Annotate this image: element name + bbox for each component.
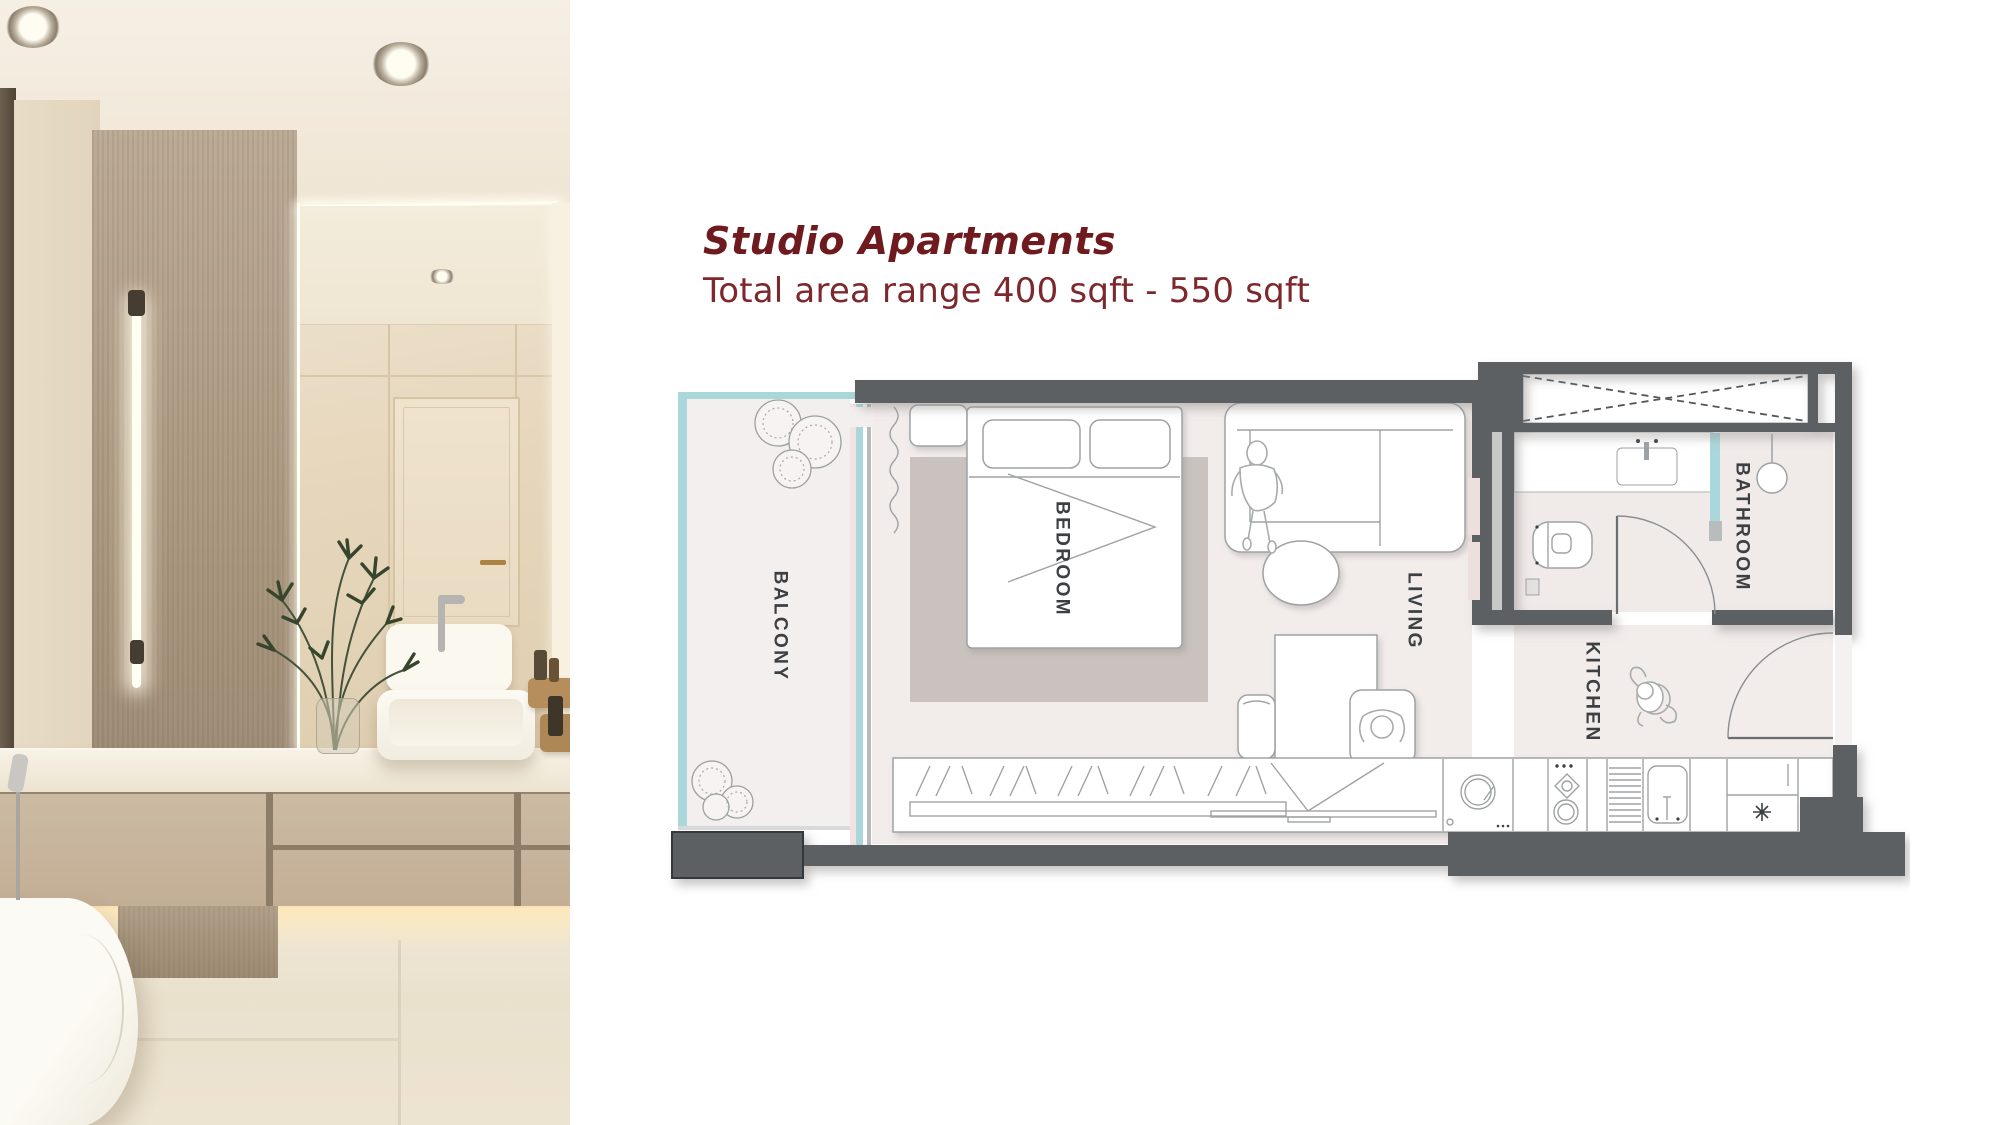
glass-wall [867, 404, 871, 846]
balcony-door-gap [849, 407, 873, 427]
wall-closet-bottom [1513, 423, 1835, 432]
balcony-glass-edge [678, 392, 687, 830]
ceiling-spotlight-icon [372, 42, 430, 86]
pillow-icon [1090, 420, 1170, 468]
wall-right-block [1800, 797, 1863, 832]
entry-door-opening [1835, 635, 1852, 745]
heading-block: Studio Apartments Total area range 400 s… [703, 220, 1310, 311]
wall-balcony-block [672, 832, 803, 878]
towel-rail-icon [1710, 433, 1720, 521]
vanity-counter [1514, 432, 1712, 492]
glass-wall [856, 404, 863, 846]
toilet-icon [1533, 522, 1592, 568]
room-label-living: LIVING [1404, 572, 1425, 650]
page: Studio Apartments Total area range 400 s… [0, 0, 2000, 1125]
wall-closet-divider [1808, 374, 1818, 423]
wall-right-upper [1835, 362, 1852, 635]
light-bracket [128, 290, 145, 316]
floor-plan-svg: BALCONY BEDROOM LIVING BATHROOM KITCHEN [660, 350, 1910, 910]
glass-wall [863, 404, 867, 846]
mirror-tile-seam [300, 375, 558, 377]
room-label-bathroom: BATHROOM [1732, 462, 1753, 592]
glass-wall [850, 404, 856, 846]
wall-bottom-living [803, 845, 1448, 866]
faucet-spout [438, 595, 465, 604]
wall-top-main [855, 380, 1478, 403]
room-label-bedroom: BEDROOM [1052, 501, 1073, 617]
bedside-table-icon [910, 405, 967, 446]
wall-niche [1468, 478, 1480, 535]
bottle-icon [549, 658, 559, 682]
page-subtitle: Total area range 400 sqft - 550 sqft [703, 271, 1310, 312]
floor-grout [398, 940, 401, 1125]
page-title: Studio Apartments [703, 220, 1310, 264]
ceiling-spotlight-icon [6, 6, 60, 48]
door-handle-icon [480, 560, 506, 565]
led-tube-light [132, 298, 141, 688]
wall-bottom-kitchen [1448, 832, 1905, 876]
faucet-icon [438, 600, 445, 652]
chair-icon [1238, 695, 1275, 759]
mirror-spotlight-icon [428, 269, 456, 284]
wood-pedestal [118, 906, 278, 978]
room-label-kitchen: KITCHEN [1582, 641, 1603, 742]
flush-plate [1526, 579, 1539, 595]
wall-shaft [1492, 432, 1502, 610]
bottle-icon [548, 696, 563, 736]
room-label-balcony: BALCONY [770, 571, 791, 682]
bathroom-photo [0, 0, 570, 1125]
balcony-edge-line [678, 826, 850, 830]
wardrobe-kitchen-band [893, 758, 1833, 832]
vanity-cabinet [0, 792, 570, 912]
cabinet-seam [273, 845, 570, 850]
cabinet-seam [266, 792, 273, 910]
towel-rail-cap [1709, 521, 1722, 541]
light-bracket [130, 640, 144, 664]
balcony-glass-edge [678, 392, 855, 399]
ceiling-light-icon [1757, 463, 1787, 493]
wall-niche [1468, 542, 1480, 600]
cabinet-seam [514, 792, 521, 910]
wall-right-lower [1833, 745, 1857, 797]
photo-left-wall [14, 100, 100, 790]
wall-top-right [1478, 362, 1852, 374]
vanity-faucet [1644, 442, 1649, 460]
wall-bathroom-bottom-right [1712, 610, 1833, 625]
vessel-sink-front [377, 690, 535, 760]
wall-bathroom-bottom-left [1513, 610, 1612, 625]
bottle-icon [534, 650, 547, 680]
mirror-reflection-ceiling [300, 206, 558, 325]
plant-vase [316, 698, 360, 754]
pillow-icon [983, 420, 1080, 468]
